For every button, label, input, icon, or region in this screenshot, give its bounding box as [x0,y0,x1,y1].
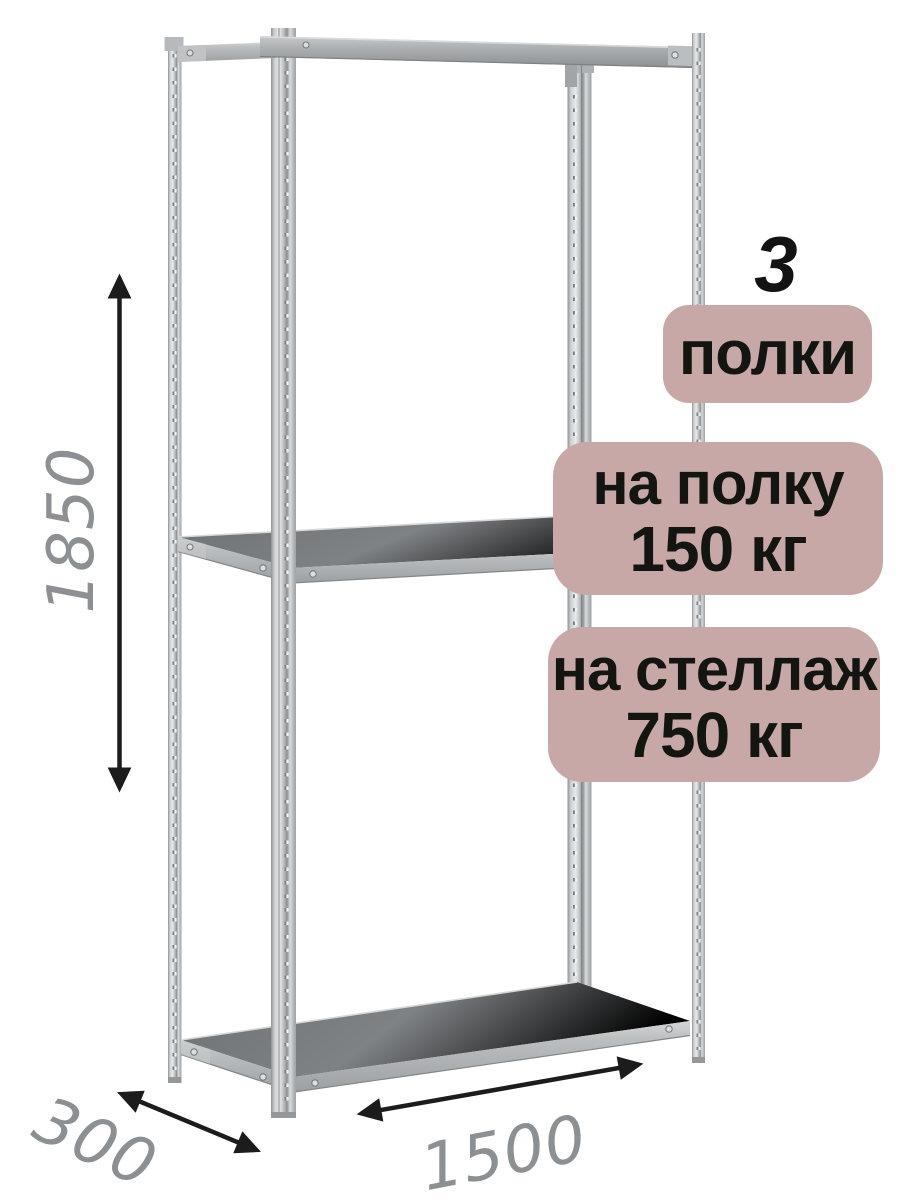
per-shelf-load-value: 150 кг [629,515,806,584]
shelf-count-badge: полки [663,305,872,403]
per-shelf-load-badge: на полку 150 кг [553,442,883,595]
shelf-bottom [181,982,690,1092]
per-rack-load-value: 750 кг [625,701,802,770]
per-rack-load-text: на стеллаж [552,639,877,701]
top-frame [178,36,692,68]
height-dimension-label: 1850 [38,380,106,680]
per-rack-load-badge: на стеллаж 750 кг [548,627,880,782]
per-shelf-load-text: на полку [592,453,843,515]
shelf-count-label: полки [679,322,856,386]
post-front-left [271,28,296,1118]
shelving-rack-illustration [0,0,900,1200]
post-rear-left [165,37,184,1083]
shelf-count-number: 3 [706,222,846,306]
product-diagram: 1850 300 1500 3 полки на полку 150 кг на… [0,0,900,1200]
